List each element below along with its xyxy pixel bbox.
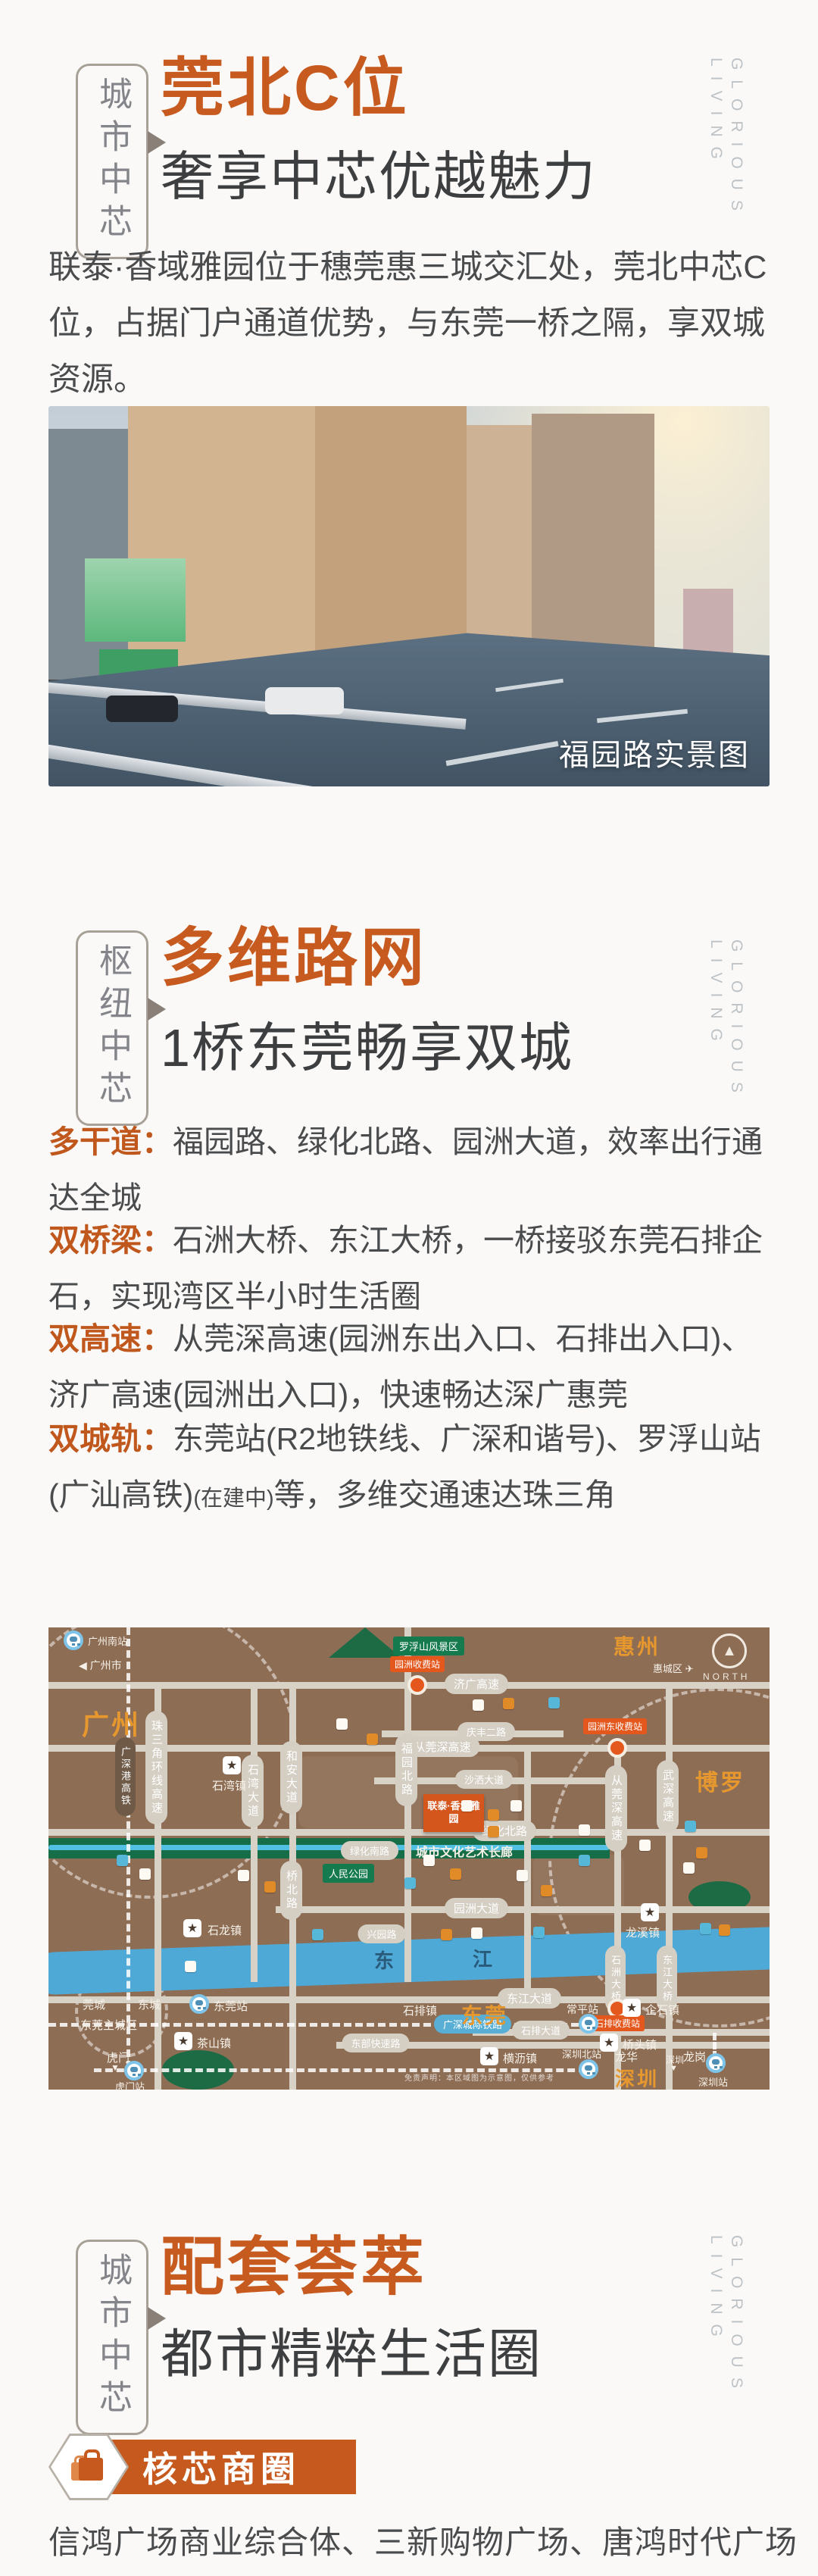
road-label: 庆丰二路 [457,1722,515,1741]
peoples-park-label: 人民公园 [323,1864,374,1883]
town-label: 石排镇 [403,2002,437,2018]
area-label: 东莞主城区 [80,2017,137,2033]
watermark-glorious-living: GLORIOUS LIVING [706,939,747,1102]
region-label-guangzhou: 广州 [82,1703,141,1743]
town-star-icon: ★ [183,1919,201,1937]
river-label: 东 [374,1946,394,1974]
transport-bullet: 多干道：福园路、绿化北路、园洲大道，效率出行通达全城 [48,1114,776,1226]
down-arrow-icon: ▼ [111,2062,120,2073]
project-marker: 联泰·香域雅园 [423,1794,484,1832]
map-road [666,1682,673,2090]
photo-green-sign [85,558,186,642]
compass-icon: ▲ [712,1633,747,1668]
road-label: 绿化南路 [341,1841,398,1860]
map-poi-marker [639,1840,651,1851]
watermark-glorious-living: GLORIOUS LIVING [706,2235,747,2398]
badge-label: 核芯商圈 [142,2442,300,2492]
mountain-park-icon [329,1627,401,1658]
road-label: 园洲大道 [445,1898,508,1918]
road-label: 桥北路 [280,1861,302,1920]
map-poi-marker [473,1699,484,1711]
watermark-word: GLORIOUS [726,2235,747,2398]
down-arrow-icon: ▼ [670,2064,678,2073]
toll-label: 园洲东收费站 [583,1718,647,1734]
road-label: 沙洒大道 [455,1770,513,1789]
area-label: 东城 [138,1996,161,2012]
town-label: 石湾镇 [212,1777,246,1793]
map-poi-marker [367,1733,378,1745]
bullet-text-small: (在建中) [193,1487,273,1511]
transport-bullet: 双桥梁：石洲大桥、东江大桥，一桥接驳东莞石排企石，实现湾区半小时生活圈 [48,1212,776,1324]
watermark-glorious-living: GLORIOUS LIVING [706,58,747,220]
watermark-word: LIVING [706,2235,726,2398]
region-label-huizhou: 惠州 [613,1630,660,1661]
transport-bullet: 双城轨：东莞站(R2地铁线、广深和谐号)、罗浮山站(广汕高铁)(在建中)等，多维… [48,1411,776,1527]
map-poi-marker [510,1800,522,1812]
section-tag-transport: 枢纽中芯 [76,930,148,1126]
photo-car [106,696,178,722]
section-tag-text: 城市中芯 [88,77,136,246]
photo-car [265,687,345,714]
map-poi-marker [312,1929,323,1940]
town-star-icon: ★ [600,2034,618,2052]
bullet-label: 多干道： [48,1124,173,1159]
town-star-icon: ★ [623,1999,641,2017]
section-subtitle-location: 奢享中芯优越魅力 [161,150,597,203]
map-poi-marker [488,1809,499,1821]
plane-icon: ✈ [685,1663,694,1674]
transport-bullet: 双高速：从莞深高速(园洲东出入口、石排出入口)、济广高速(园洲出入口)，快速畅达… [48,1311,776,1423]
region-label-shenzhen: 深圳 [615,2064,659,2090]
map-road [276,1906,770,1913]
road-label: 东部快速路 [342,2034,409,2052]
road-label: 和安大道 [280,1741,302,1814]
map-poi-marker [700,1923,711,1934]
map-poi-marker [450,1868,461,1880]
toll-label: 园洲收费站 [390,1656,445,1672]
station-icon [579,2014,598,2034]
map-poi-marker [541,1885,552,1896]
shopping-bag-icon [79,2458,103,2481]
station-icon [189,1994,209,2014]
map-poi-marker [441,1929,452,1940]
section-tag-text: 城市中芯 [88,2252,136,2422]
river-label: 江 [473,1944,492,1972]
station-label: 东莞站 [214,1998,248,2014]
section-title-amenity: 配套荟萃 [161,2235,427,2299]
bullet-label: 双桥梁： [48,1223,173,1258]
area-label: 惠城区 ✈ [653,1661,694,1675]
map-poi-marker [117,1855,128,1866]
map-poi-marker [719,1924,730,1936]
town-star-icon: ★ [223,1756,241,1774]
road-label: 从莞深高速 [605,1765,627,1852]
map-poi-marker [579,1824,590,1836]
street-photo: 福园路实景图 [48,406,770,786]
map-poi-marker [696,1847,707,1859]
road-label: 珠三角环线高速 [145,1711,167,1824]
toll-dot [607,1738,627,1758]
toll-dot [407,1675,427,1695]
town-label: 企石镇 [645,2002,679,2018]
section-title-location: 莞北C位 [161,56,410,120]
map-poi-marker [404,1877,416,1889]
town-star-icon: ★ [174,2032,192,2050]
map-poi-marker [548,1697,560,1708]
station-icon [579,2059,598,2079]
town-label: 横沥镇 [503,2050,537,2066]
map-poi-marker [517,1870,528,1881]
location-map: 东 江 济广高速 从莞深高速 庆丰二路 沙洒大道 绿化北路 绿化南路 [48,1627,770,2090]
rail-gangshen-hsr [126,1627,130,2068]
area-label: 莞城 [83,1996,105,2012]
map-poi-marker [685,1821,696,1832]
core-business-badge: 核芯商圈 [48,2434,397,2500]
section-tag-text: 枢纽中芯 [88,943,136,1113]
station-label: 深圳北站 [562,2046,601,2061]
map-poi-marker [336,1718,348,1730]
town-star-icon: ★ [480,2047,498,2065]
watermark-word: LIVING [706,58,726,220]
bullet-label: 双高速： [48,1321,173,1356]
location-paragraph: 联泰·香域雅园位于穗莞惠三城交汇处，莞北中芯C位，占据门户通道优势，与东莞一桥之… [48,239,770,408]
map-road [251,1682,258,1982]
map-poi-marker [461,1800,473,1812]
road-label: 福园北路 [395,1733,417,1806]
town-label: 茶山镇 [197,2035,231,2051]
road-label: 济广高速 [445,1674,508,1694]
town-label: 龙溪镇 [626,1924,660,1940]
tag-arrow-icon [148,998,166,1021]
section-tag-location: 城市中芯 [76,64,148,259]
map-disclaimer: 免责声明：本区域图为示意图，仅供参考 [404,2071,554,2083]
map-poi-marker [503,1698,514,1709]
map-poi-marker [139,1868,151,1880]
bullet-label: 双城轨： [48,1421,173,1456]
watermark-word: LIVING [706,939,726,1102]
map-poi-marker [423,1855,435,1866]
road-label: 武深高速 [657,1760,679,1833]
map-poi-marker [533,1927,545,1938]
map-poi-marker [488,1826,499,1837]
station-icon [124,2061,144,2080]
town-star-icon: ★ [641,1903,659,1921]
map-poi-marker [238,1870,249,1881]
section-title-transport: 多维路网 [161,926,427,989]
area-label: 龙岗 [683,2049,706,2065]
watermark-word: GLORIOUS [726,58,747,220]
station-label: 虎门站 [115,2079,145,2090]
road-label: 石排大道 [512,2021,570,2040]
shop-list-line: 信鸿广场商业综合体、三新购物广场、唐鸿时代广场 [48,2517,798,2563]
town-label: 石龙镇 [208,1922,242,1938]
map-poi-marker [683,1862,695,1874]
station-label: 深圳站 [698,2074,728,2089]
road-label: 兴园路 [357,1924,405,1943]
town-label: 桥头镇 [623,2037,657,2052]
guangzhou-city-arrow: ◀ 广州市 [79,1658,122,1673]
bullet-text: 等，多维交通速达珠三角 [274,1477,616,1512]
photo-caption: 福园路实景图 [559,730,750,774]
station-label: 广州南站 [88,1633,127,1648]
map-poi-marker [579,1855,590,1866]
badge-hexagon [48,2434,129,2500]
section-subtitle-transport: 1桥东莞畅享双城 [161,1021,573,1074]
rail-label: 广深港高铁 [115,1737,136,1816]
watermark-word: GLORIOUS [726,939,747,1102]
station-icon [64,1630,83,1650]
compass-north-arrow: ▲ [722,1643,737,1660]
region-label-boluo: 博罗 [695,1764,745,1797]
scenic-area-label: 罗浮山风景区 [393,1637,464,1655]
promo-page: GLORIOUS LIVING 城市中芯 莞北C位 奢享中芯优越魅力 联泰·香域… [0,0,818,2576]
map-poi-marker [185,1961,196,1972]
section-subtitle-amenity: 都市精粹生活圈 [161,2327,542,2381]
compass-label: NORTH [703,1671,750,1682]
map-poi-marker [264,1881,276,1893]
map-poi-marker [471,1927,482,1939]
section-tag-amenity: 城市中芯 [76,2240,148,2435]
region-label-dongguan: 东莞 [461,1999,508,2030]
station-icon [706,2053,726,2073]
